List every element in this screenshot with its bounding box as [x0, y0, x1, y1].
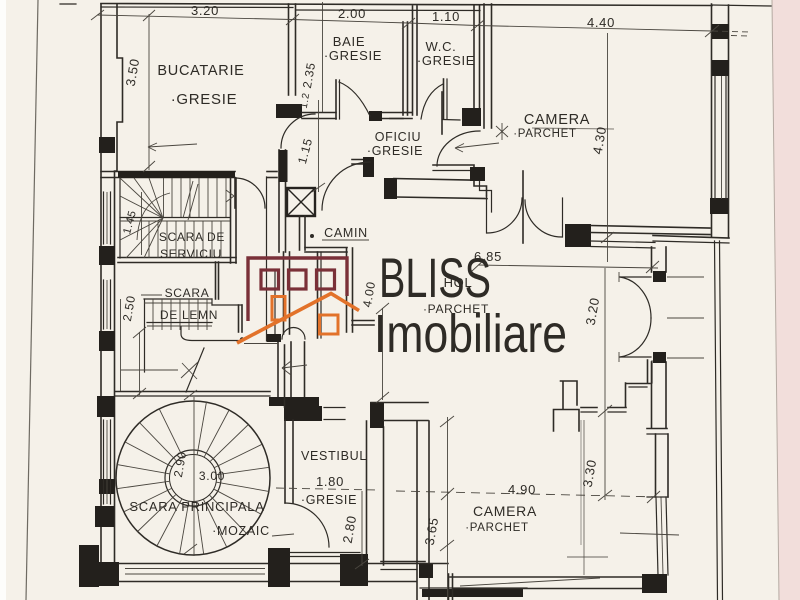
svg-text:2.00: 2.00	[338, 6, 366, 21]
svg-text:·PARCHET: ·PARCHET	[465, 522, 529, 534]
svg-text:·GRESIE: ·GRESIE	[324, 48, 382, 63]
svg-text:·MOZAIC: ·MOZAIC	[212, 524, 270, 538]
svg-text:·GRESIE: ·GRESIE	[367, 144, 423, 158]
svg-text:CAMERA: CAMERA	[473, 503, 537, 519]
svg-text:CAMERA: CAMERA	[524, 112, 590, 128]
svg-text:·GRESIE: ·GRESIE	[417, 53, 475, 68]
svg-text:1.10: 1.10	[432, 9, 460, 24]
svg-text:SCARA: SCARA	[165, 286, 210, 300]
svg-text:BAIE: BAIE	[333, 34, 365, 49]
svg-text:4.90: 4.90	[508, 482, 536, 497]
svg-text:3.00: 3.00	[199, 469, 225, 483]
svg-text:·GRESIE: ·GRESIE	[301, 493, 357, 507]
svg-text:1.80: 1.80	[316, 474, 344, 489]
svg-text:SCARA PRINCIPALA: SCARA PRINCIPALA	[129, 499, 264, 514]
svg-text:OFICIU: OFICIU	[375, 130, 422, 144]
svg-text:HOL: HOL	[444, 275, 473, 290]
svg-text:·PARCHET: ·PARCHET	[513, 128, 577, 140]
svg-text:CAMIN: CAMIN	[324, 226, 368, 240]
svg-text:SCARA DE: SCARA DE	[159, 230, 225, 244]
svg-text:BUCATARIE: BUCATARIE	[157, 63, 244, 79]
svg-text:DE LEMN: DE LEMN	[160, 308, 218, 322]
svg-text:3.20: 3.20	[191, 3, 219, 18]
svg-text:W.C.: W.C.	[426, 39, 457, 54]
svg-text:·GRESIE: ·GRESIE	[171, 91, 238, 108]
svg-text:SERVICIU: SERVICIU	[160, 247, 222, 261]
svg-text:·PARCHET: ·PARCHET	[423, 302, 489, 316]
svg-text:BLISS: BLISS	[379, 246, 491, 309]
svg-text:4.40: 4.40	[587, 15, 615, 30]
svg-text:VESTIBUL: VESTIBUL	[301, 449, 367, 463]
